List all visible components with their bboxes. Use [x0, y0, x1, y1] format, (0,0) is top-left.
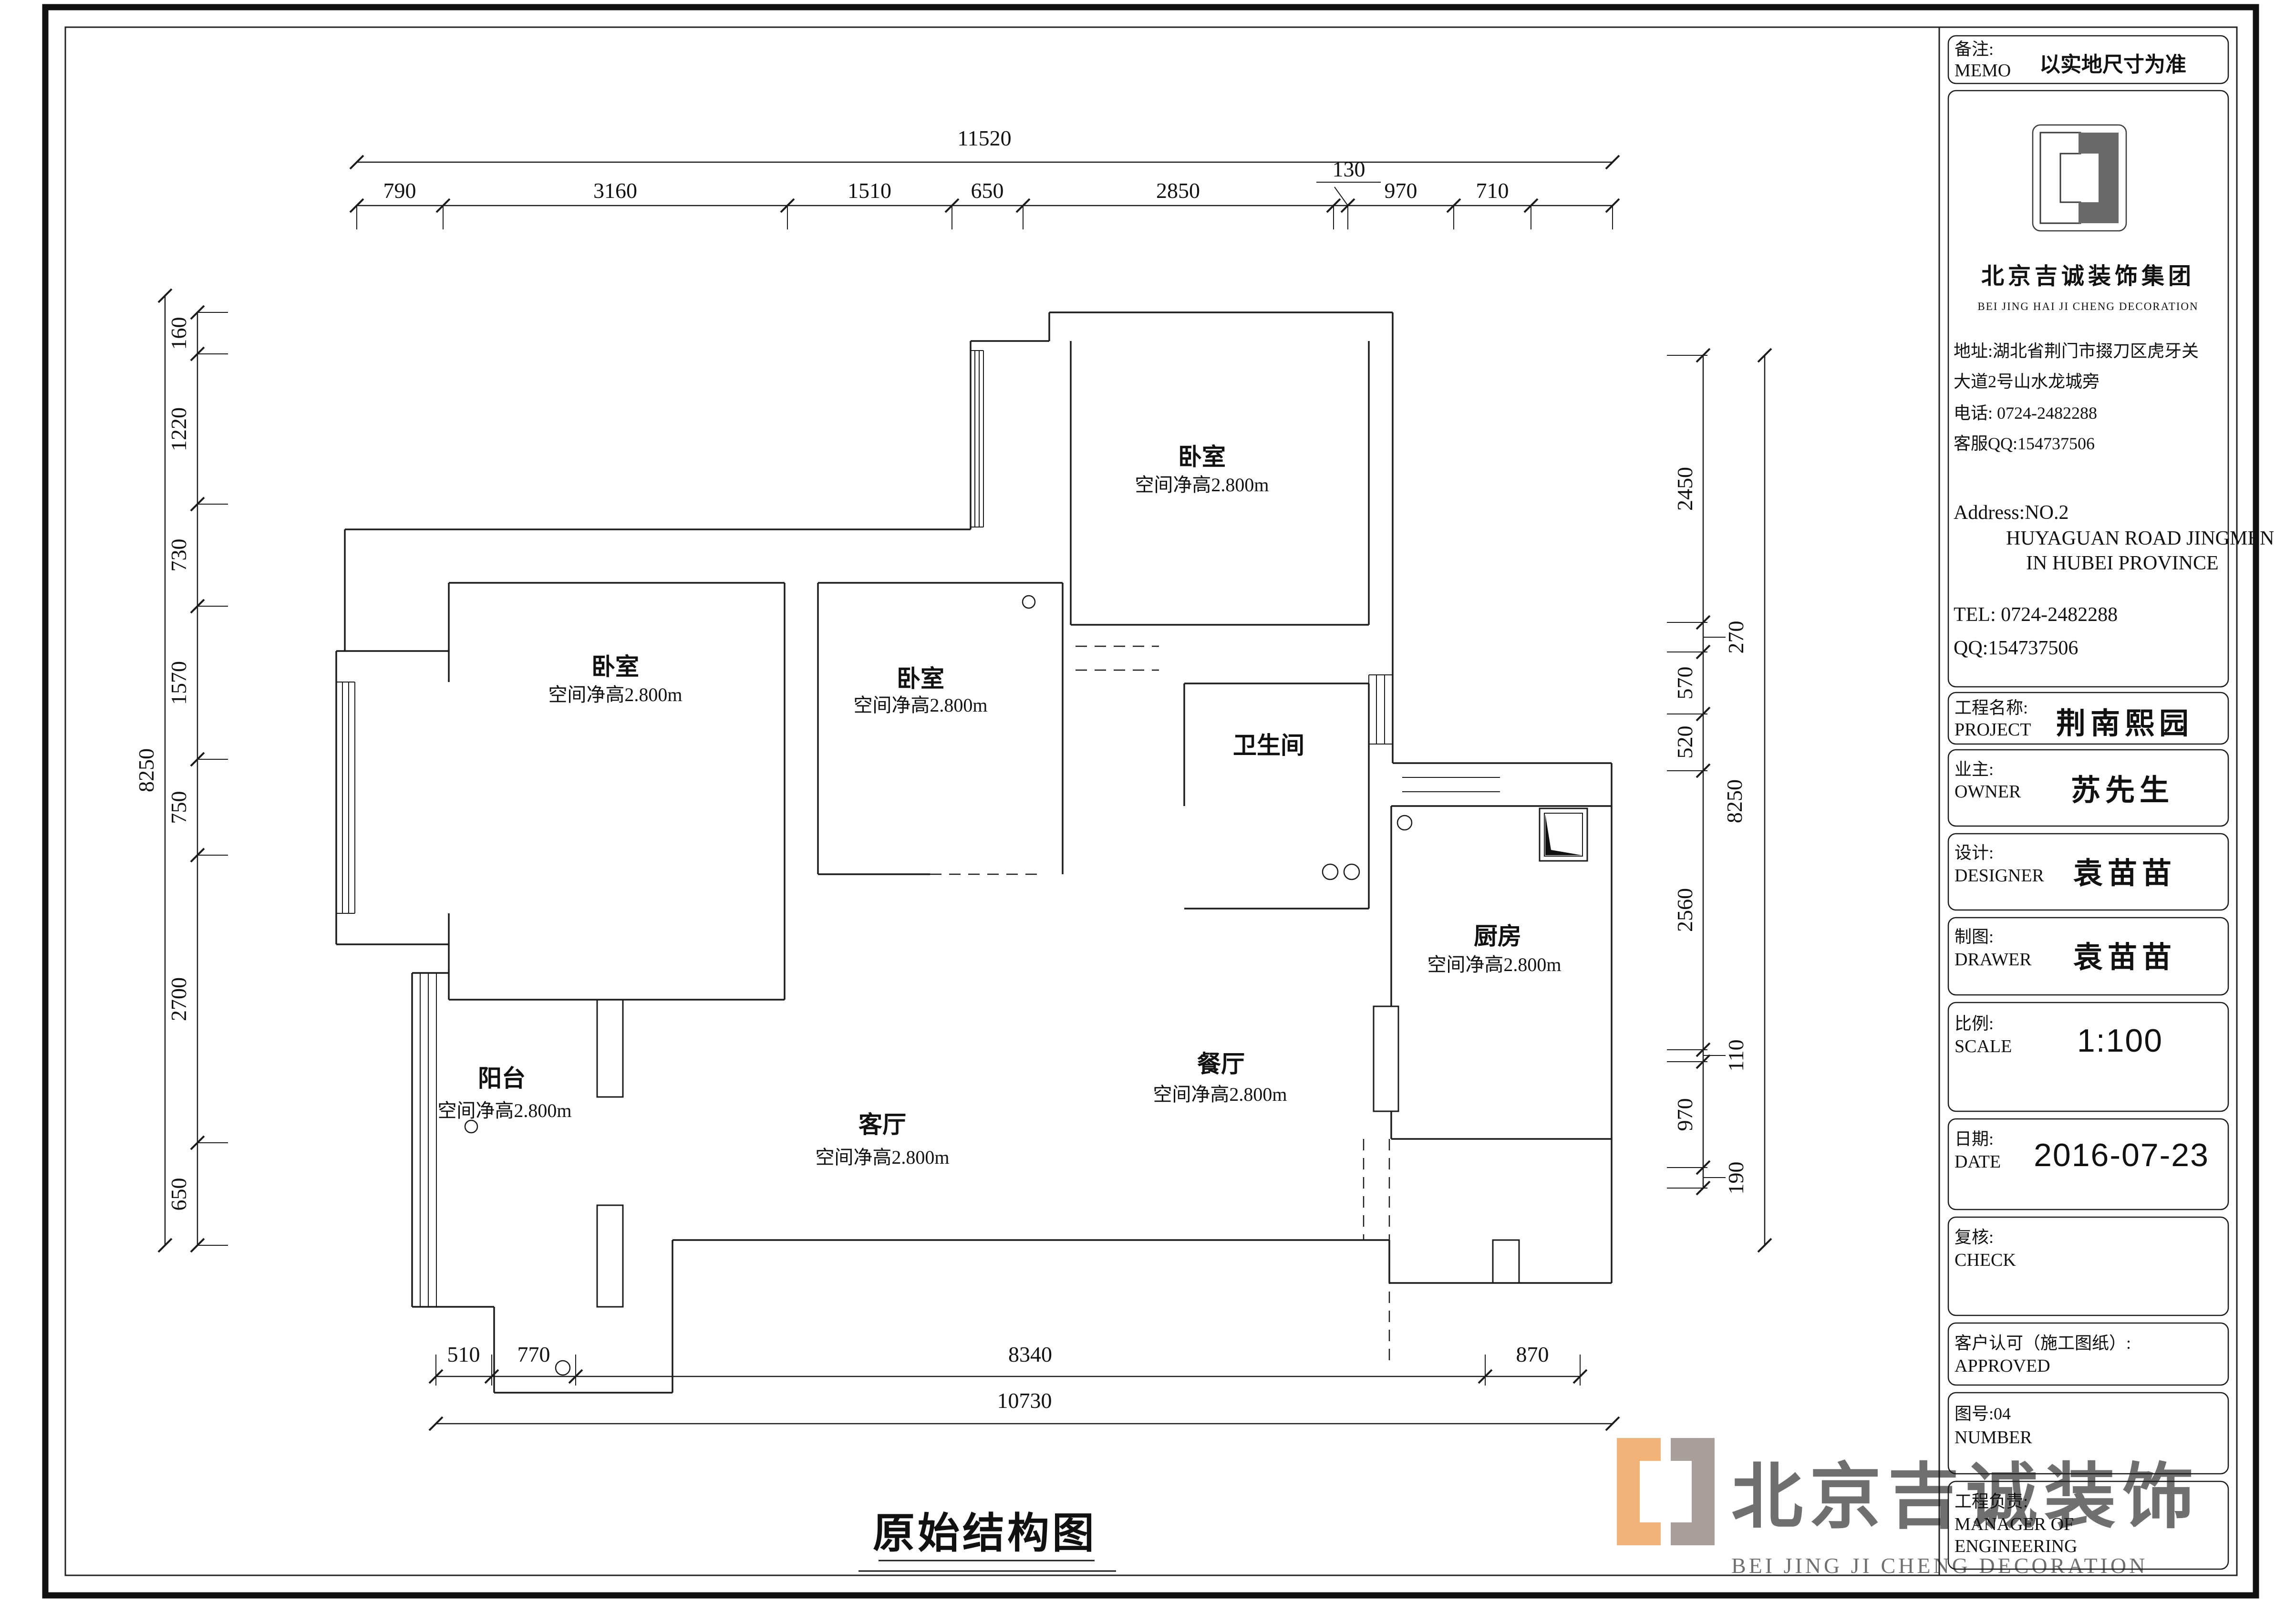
designer-label-en: DESIGNER [1955, 866, 2045, 886]
drawer-value: 袁苗苗 [2073, 941, 2176, 974]
dim-left-1: 1220 [166, 407, 191, 451]
room-label-bedroom-mid: 卧室 [897, 665, 944, 692]
room-label-bathroom: 卫生间 [1233, 732, 1304, 759]
room-label-balcony: 阳台 [478, 1065, 526, 1092]
dim-right-7: 190 [1724, 1162, 1748, 1195]
project-value: 荆南熙园 [2056, 708, 2193, 740]
company-name-cn: 北京吉诚装饰集团 [1981, 264, 2195, 289]
dim-extensions [197, 182, 1726, 1386]
company-logo-icon [2033, 125, 2126, 231]
owner-value: 苏先生 [2071, 775, 2174, 807]
dim-right-total: 8250 [1722, 779, 1747, 823]
room-label-bedroom-top: 卧室 [1178, 444, 1226, 470]
owner-label-en: OWNER [1955, 782, 2021, 802]
room-height: 空间净高2.800m [1135, 474, 1269, 496]
qq-cn: 客服QQ:154737506 [1954, 434, 2095, 453]
drawing-title: 原始结构图 [873, 1511, 1097, 1557]
dim-top-7: 710 [1476, 178, 1509, 203]
address-en-1: Address:NO.2 [1954, 502, 2068, 524]
engineering-label-en-2: ENGINEERING [1955, 1536, 2078, 1556]
dim-bottom-2: 8340 [1008, 1342, 1052, 1366]
dim-top-1: 3160 [593, 178, 637, 203]
dim-top-2: 1510 [848, 178, 891, 203]
engineering-label-en-1: MANAGER OF [1955, 1514, 2074, 1534]
room-height: 空间净高2.800m [1427, 954, 1561, 975]
dim-top-total: 11520 [957, 126, 1011, 150]
dim-right-3: 520 [1673, 726, 1697, 759]
wall-stub [597, 1205, 623, 1307]
dim-left-6: 650 [166, 1178, 191, 1211]
qq-en: QQ:154737506 [1954, 637, 2078, 659]
room-height: 空间净高2.800m [815, 1147, 949, 1168]
room-height: 空间净高2.800m [437, 1100, 571, 1121]
dim-right-2: 570 [1673, 667, 1697, 700]
dim-bottom-3: 870 [1516, 1342, 1549, 1366]
door-openings-dashed [930, 646, 1389, 1364]
wall-stub [597, 1000, 623, 1097]
watermark-logo-taupe [1671, 1438, 1715, 1545]
approved-label-cn: 客户认可（施工图纸）: [1955, 1334, 2131, 1353]
dim-right-6: 970 [1673, 1098, 1697, 1131]
dim-top-4: 2850 [1156, 178, 1200, 203]
date-value: 2016-07-23 [2034, 1137, 2209, 1173]
drawer-label-en: DRAWER [1955, 950, 2032, 970]
approved-label-en: APPROVED [1955, 1356, 2050, 1376]
company-name-en: BEI JING HAI JI CHENG DECORATION [1977, 300, 2198, 312]
date-label-en: DATE [1955, 1152, 2001, 1172]
designer-label-cn: 设计: [1955, 843, 1994, 862]
floorplan-sheet: 北京吉诚装饰 BEI JING JI CHENG DECORATION 卧室 空… [0, 0, 2296, 1603]
dim-bottom-1: 770 [517, 1342, 550, 1366]
dim-left-4: 750 [166, 791, 191, 824]
dim-ticks [158, 155, 1771, 1430]
room-label-living: 客厅 [858, 1111, 906, 1138]
dim-top-5: 130 [1333, 157, 1365, 181]
tel-en: TEL: 0724-2482288 [1954, 604, 2118, 626]
dim-left-5: 2700 [166, 977, 191, 1021]
dim-lines [165, 162, 1765, 1424]
watermark-logo-orange [1617, 1438, 1661, 1545]
dim-bottom-total: 10730 [997, 1388, 1052, 1413]
check-label-cn: 复核: [1955, 1228, 1994, 1247]
room-height: 空间净高2.800m [1153, 1084, 1287, 1105]
address-cn-1: 地址:湖北省荆门市掇刀区虎牙关 [1954, 341, 2199, 361]
memo-value: 以实地尺寸为准 [2039, 53, 2186, 76]
room-height: 空间净高2.800m [853, 694, 987, 716]
address-en-3: IN HUBEI PROVINCE [2026, 552, 2219, 574]
dim-left-0: 160 [166, 317, 191, 350]
address-en-2: HUYAGUAN ROAD JINGMEN [2006, 527, 2274, 549]
dim-left-2: 730 [166, 539, 191, 572]
project-label-en: PROJECT [1955, 720, 2031, 740]
scale-label-cn: 比例: [1955, 1014, 1994, 1033]
room-height: 空间净高2.800m [548, 684, 682, 705]
title-block: 备注: MEMO 以实地尺寸为准 北京吉诚装饰集团 BEI JING HAI J… [1948, 36, 2274, 1569]
dim-left-3: 1570 [166, 661, 191, 705]
drawing-title-group: 原始结构图 [858, 1511, 1116, 1571]
room-label-kitchen: 厨房 [1474, 923, 1521, 950]
dim-bottom-0: 510 [447, 1342, 480, 1366]
dim-right-5: 110 [1724, 1039, 1748, 1071]
date-label-cn: 日期: [1955, 1129, 1994, 1148]
designer-value: 袁苗苗 [2073, 858, 2176, 890]
room-label-bedroom-left: 卧室 [591, 653, 639, 680]
address-cn-2: 大道2号山水龙城旁 [1954, 372, 2099, 391]
dim-top-3: 650 [971, 178, 1004, 203]
dim-top-0: 790 [383, 178, 416, 203]
scale-value: 1:100 [2077, 1023, 2163, 1059]
project-label-cn: 工程名称: [1955, 698, 2028, 717]
room-label-dining: 餐厅 [1197, 1051, 1245, 1077]
floor-plan [336, 312, 1612, 1393]
watermark-text-en: BEI JING JI CHENG DECORATION [1731, 1553, 2148, 1578]
owner-label-cn: 业主: [1955, 760, 1994, 779]
dim-right-0: 2450 [1673, 467, 1697, 511]
flue-symbol [1540, 808, 1587, 861]
number-label-en: NUMBER [1955, 1427, 2032, 1448]
check-label-en: CHECK [1955, 1250, 2016, 1270]
watermark: 北京吉诚装饰 BEI JING JI CHENG DECORATION [1617, 1438, 2201, 1578]
dim-right-1: 270 [1724, 621, 1748, 654]
walls [336, 312, 1612, 1393]
scale-label-en: SCALE [1955, 1036, 2012, 1056]
dim-right-4: 2560 [1673, 888, 1697, 932]
kitchen-door-leaf [1374, 1006, 1398, 1111]
engineering-label-cn: 工程负责: [1955, 1492, 2028, 1511]
sheet-frame [45, 7, 2256, 1595]
phone-cn: 电话: 0724-2482288 [1954, 403, 2097, 423]
number-label-cn: 图号:04 [1955, 1404, 2011, 1423]
drawer-label-cn: 制图: [1955, 927, 1994, 946]
dimensions: 11520 790 3160 1510 650 2850 130 970 710… [134, 126, 1771, 1430]
dim-left-total: 8250 [134, 748, 158, 792]
memo-label-cn: 备注: [1955, 40, 1994, 59]
dim-top-6: 970 [1385, 178, 1417, 203]
memo-label-en: MEMO [1955, 61, 2011, 81]
entry-step [1493, 1240, 1519, 1283]
